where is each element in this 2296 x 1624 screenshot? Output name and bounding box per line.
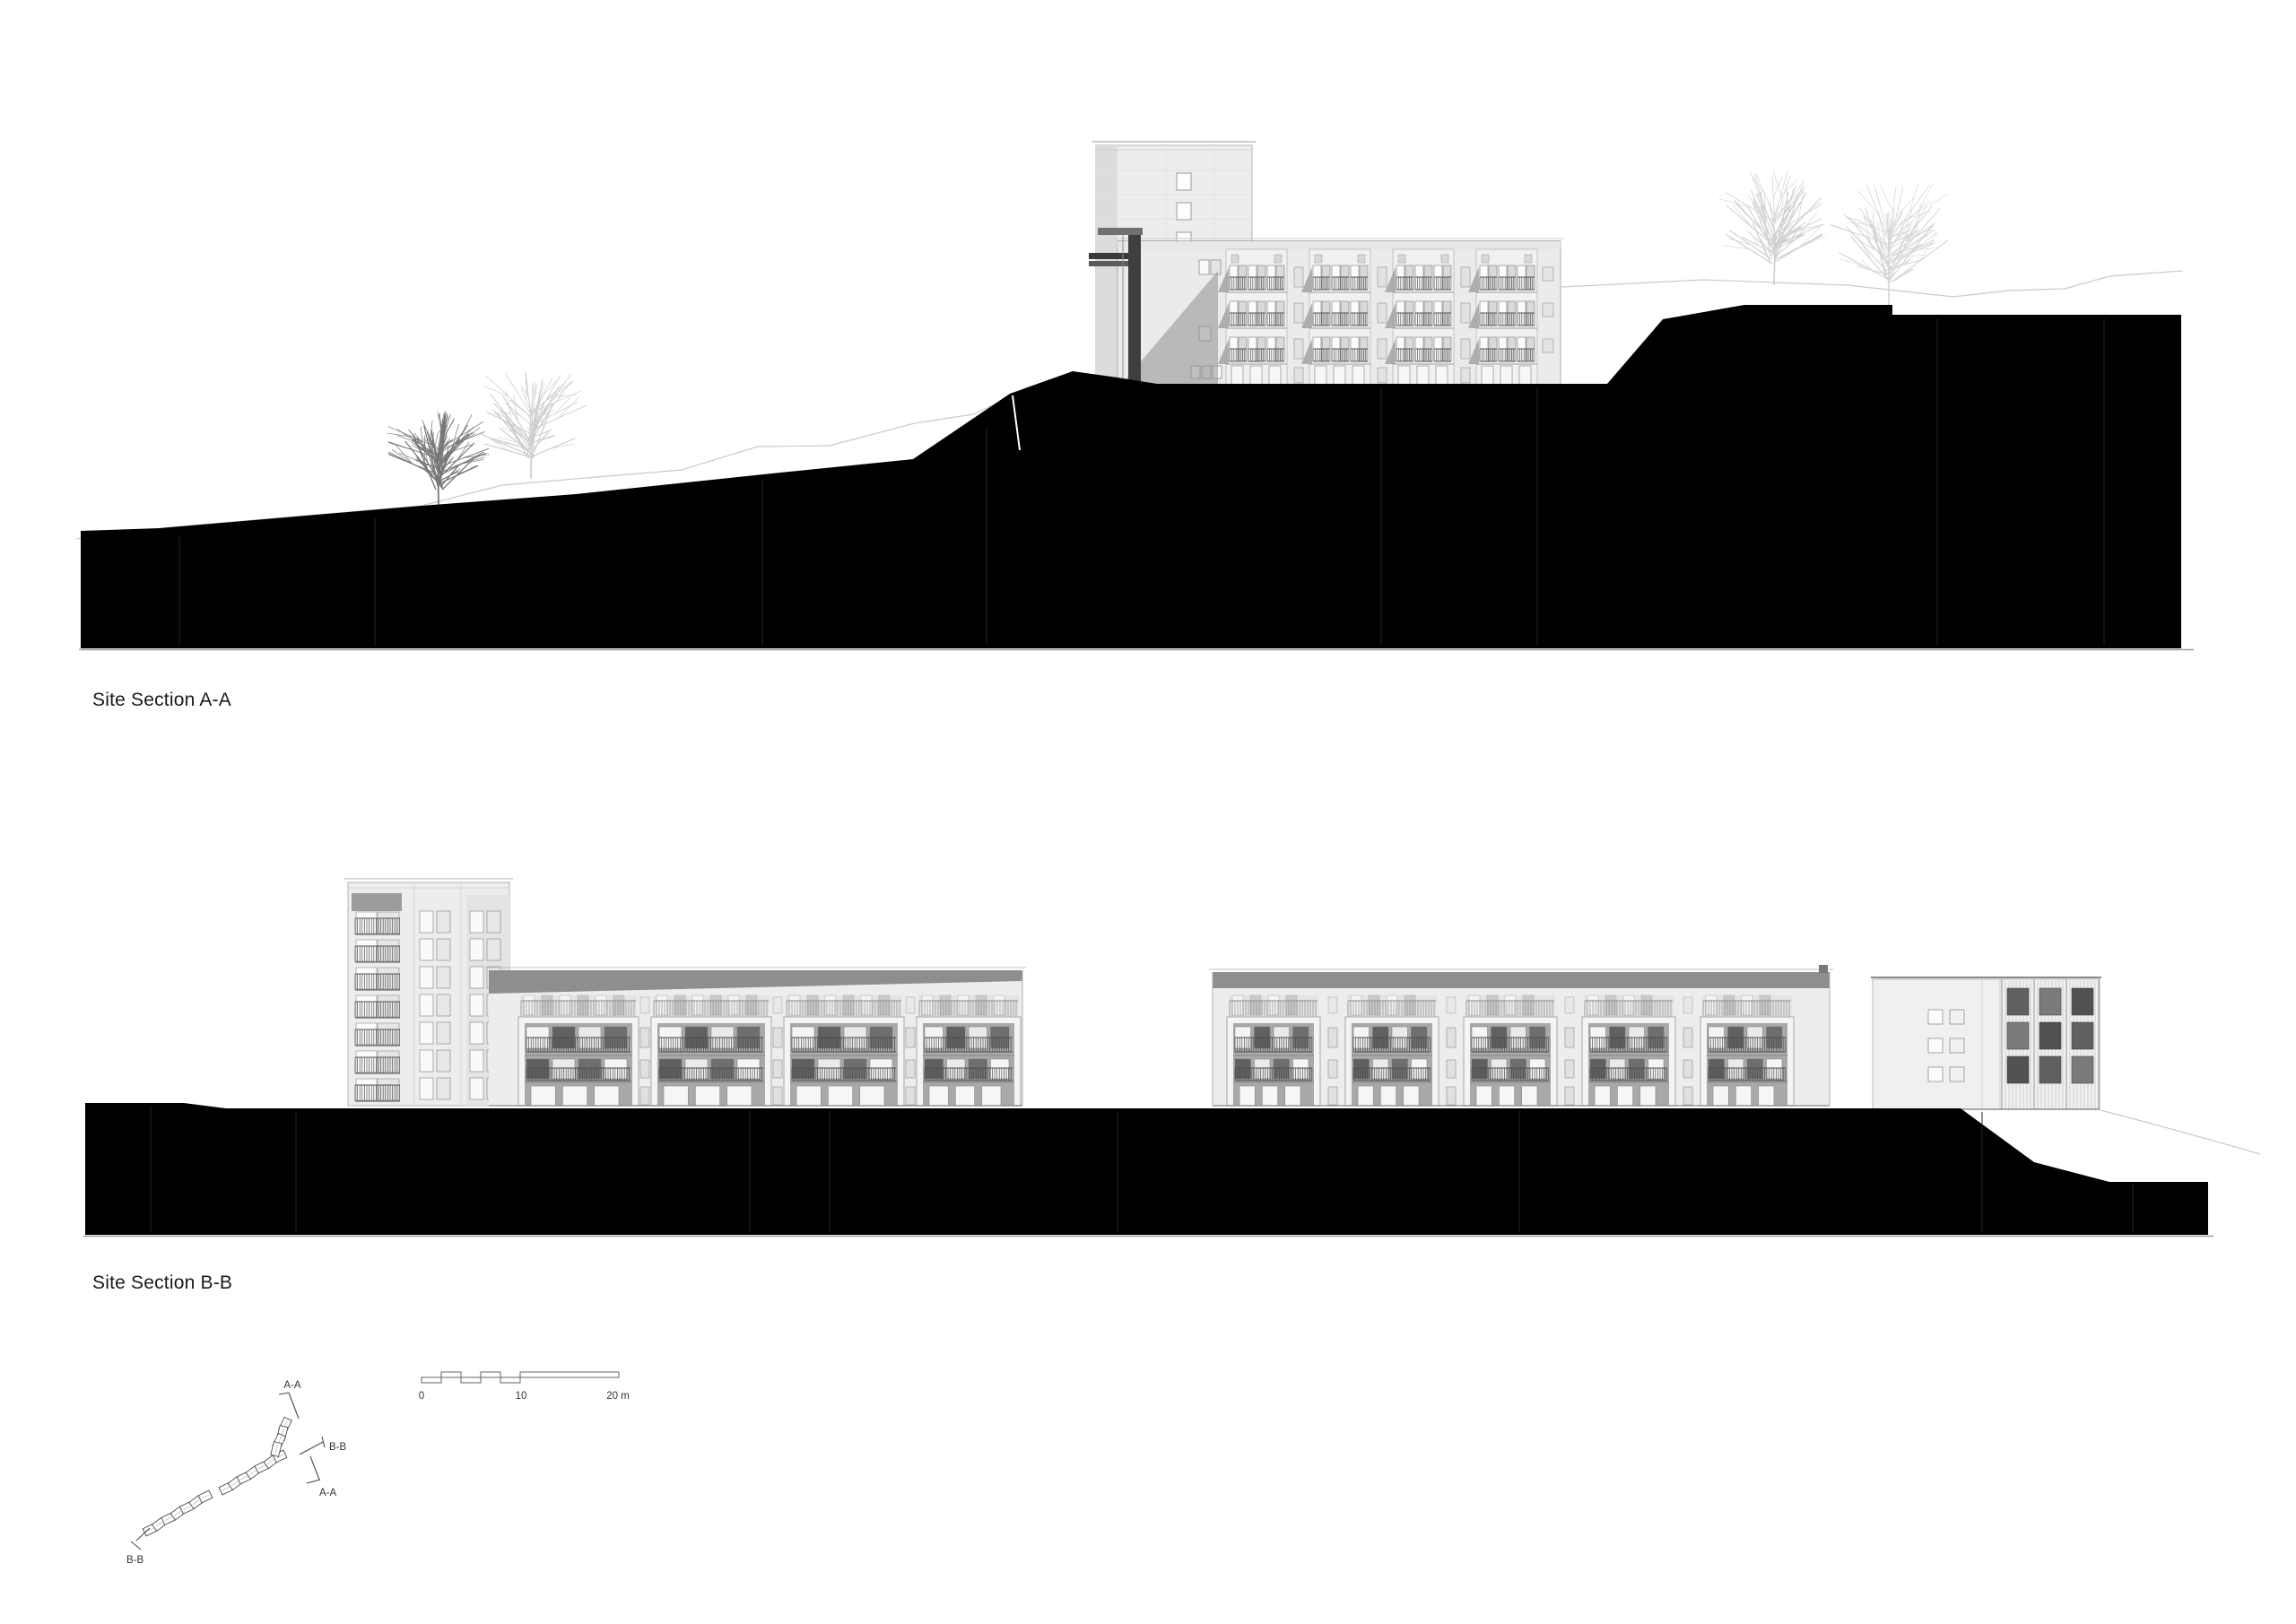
key-plan-label-bb-left: B-B xyxy=(126,1555,144,1566)
scale-bar-tick-20: 20 m xyxy=(606,1391,630,1402)
section-b-buildings xyxy=(344,879,2101,1109)
key-plan-footprints xyxy=(131,1393,325,1550)
scale-bar-segments xyxy=(422,1372,619,1383)
site-sections-drawing: A-A B-B A-A B-B 0 10 20 m xyxy=(0,0,2296,1624)
scale-bar-tick-0: 0 xyxy=(419,1391,424,1402)
key-plan: A-A B-B A-A B-B xyxy=(126,1380,347,1566)
key-plan-label-aa-bottom: A-A xyxy=(319,1488,337,1498)
section-a-title: Site Section A-A xyxy=(92,690,231,711)
drawing-sheet: A-A B-B A-A B-B 0 10 20 m Site Section A… xyxy=(0,0,2296,1624)
scale-bar: 0 10 20 m xyxy=(419,1372,630,1402)
section-b-title: Site Section B-B xyxy=(92,1272,232,1294)
section-a-building xyxy=(1089,142,1564,385)
key-plan-label-bb-right: B-B xyxy=(329,1442,347,1453)
section-b-terrain-poche xyxy=(83,1103,2213,1237)
key-plan-label-aa-top: A-A xyxy=(283,1380,301,1391)
scale-bar-tick-10: 10 xyxy=(516,1391,527,1402)
